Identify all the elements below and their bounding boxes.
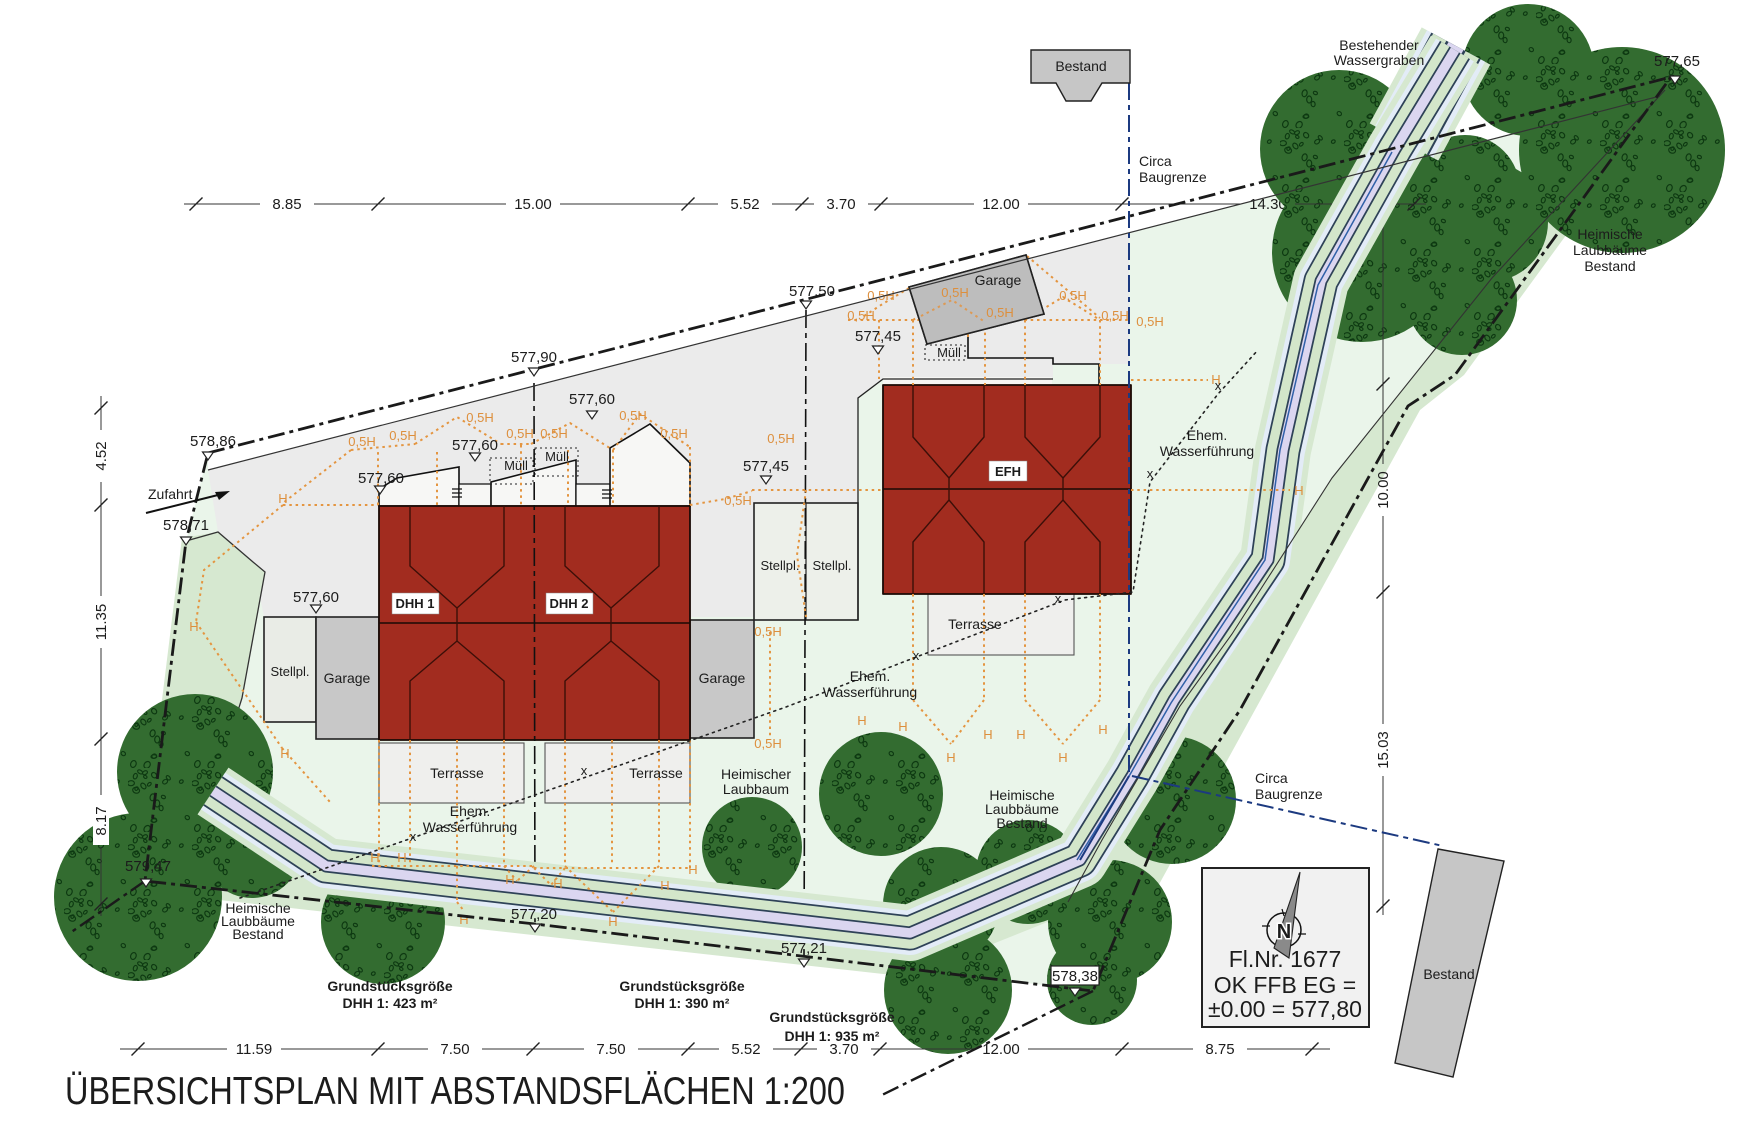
svg-text:H: H (608, 914, 617, 929)
svg-text:0,5H: 0,5H (1136, 314, 1163, 329)
svg-text:Müll: Müll (545, 449, 569, 464)
svg-text:0,5H: 0,5H (619, 408, 646, 423)
svg-text:8.17: 8.17 (93, 806, 110, 835)
svg-text:EFH: EFH (995, 464, 1021, 479)
svg-text:577,60: 577,60 (452, 437, 498, 454)
svg-text:±0.00 = 577,80: ±0.00 = 577,80 (1208, 996, 1362, 1022)
svg-text:Garage: Garage (699, 670, 746, 686)
svg-text:0,5H: 0,5H (724, 493, 751, 508)
svg-text:Zufahrt: Zufahrt (148, 486, 192, 502)
svg-text:H: H (397, 850, 406, 865)
svg-text:578,86: 578,86 (190, 433, 236, 450)
svg-text:Grundstücksgröße: Grundstücksgröße (327, 978, 452, 994)
svg-text:Garage: Garage (975, 272, 1022, 288)
svg-text:Müll: Müll (504, 458, 528, 473)
svg-text:Baugrenze: Baugrenze (1139, 169, 1207, 185)
svg-text:577,60: 577,60 (569, 391, 615, 408)
svg-text:H: H (459, 912, 468, 927)
svg-text:577,65: 577,65 (1654, 53, 1700, 70)
svg-text:7.50: 7.50 (596, 1041, 625, 1058)
svg-text:11.59: 11.59 (236, 1041, 272, 1058)
svg-text:Bestand: Bestand (996, 815, 1047, 831)
svg-text:DHH 2: DHH 2 (549, 596, 588, 611)
svg-text:x: x (1055, 591, 1062, 606)
svg-text:H: H (278, 491, 287, 506)
svg-text:H: H (1058, 750, 1067, 765)
svg-text:0,5H: 0,5H (540, 426, 567, 441)
svg-text:H: H (898, 719, 907, 734)
svg-text:OK FFB EG =: OK FFB EG = (1214, 972, 1357, 998)
svg-text:Garage: Garage (324, 670, 371, 686)
svg-text:11.35: 11.35 (93, 604, 110, 640)
svg-text:10.00: 10.00 (1375, 471, 1392, 509)
svg-text:H: H (553, 876, 562, 891)
svg-text:DHH 1: 390 m²: DHH 1: 390 m² (635, 995, 730, 1011)
svg-text:H: H (370, 850, 379, 865)
svg-text:x: x (581, 763, 588, 778)
svg-text:Bestand: Bestand (1055, 58, 1106, 74)
svg-text:Terrasse: Terrasse (629, 765, 683, 781)
svg-text:577,45: 577,45 (855, 328, 901, 345)
svg-text:ÜBERSICHTSPLAN MIT ABSTANDSFLÄ: ÜBERSICHTSPLAN MIT ABSTANDSFLÄCHEN 1:200 (65, 1070, 845, 1113)
svg-text:Ehem.: Ehem. (1187, 427, 1227, 443)
svg-text:577,45: 577,45 (743, 458, 789, 475)
svg-text:0,5H: 0,5H (1101, 308, 1128, 323)
svg-text:Wasserführung: Wasserführung (1160, 443, 1254, 459)
svg-text:H: H (505, 872, 514, 887)
svg-text:Stellpl.: Stellpl. (760, 558, 799, 573)
svg-text:Müll: Müll (937, 345, 961, 360)
svg-text:Bestand: Bestand (232, 926, 283, 942)
svg-text:578,38: 578,38 (1052, 968, 1098, 985)
svg-text:Ehem.: Ehem. (450, 803, 490, 819)
svg-text:Circa: Circa (1255, 770, 1288, 786)
svg-text:x: x (913, 648, 920, 663)
svg-text:577,60: 577,60 (358, 470, 404, 487)
svg-text:4.52: 4.52 (93, 441, 110, 470)
svg-text:Ehem.: Ehem. (850, 668, 890, 684)
svg-text:577,60: 577,60 (293, 589, 339, 606)
svg-text:H: H (1294, 483, 1303, 498)
svg-text:Wasserführung: Wasserführung (423, 819, 517, 835)
svg-text:0,5H: 0,5H (506, 426, 533, 441)
svg-text:H: H (1016, 727, 1025, 742)
svg-text:8.75: 8.75 (1205, 1041, 1234, 1058)
svg-text:Terrasse: Terrasse (430, 765, 484, 781)
svg-text:x: x (1215, 378, 1222, 393)
svg-text:8.85: 8.85 (272, 196, 301, 213)
svg-text:H: H (946, 750, 955, 765)
svg-text:Baugrenze: Baugrenze (1255, 786, 1323, 802)
svg-text:DHH 1: 935 m²: DHH 1: 935 m² (785, 1028, 880, 1044)
svg-text:0,5H: 0,5H (754, 736, 781, 751)
svg-text:Circa: Circa (1139, 153, 1172, 169)
svg-text:Heimische: Heimische (1577, 226, 1643, 242)
svg-text:Wasserführung: Wasserführung (823, 684, 917, 700)
svg-text:0,5H: 0,5H (986, 305, 1013, 320)
svg-text:Wassergraben: Wassergraben (1334, 52, 1425, 68)
svg-text:5.52: 5.52 (731, 1041, 760, 1058)
svg-text:Laubbaum: Laubbaum (723, 781, 789, 797)
svg-text:Fl.Nr. 1677: Fl.Nr. 1677 (1229, 946, 1342, 972)
svg-text:0,5H: 0,5H (941, 285, 968, 300)
svg-text:5.52: 5.52 (730, 196, 759, 213)
svg-text:Grundstücksgröße: Grundstücksgröße (769, 1009, 894, 1025)
svg-text:579,47: 579,47 (125, 858, 171, 875)
svg-text:0,5H: 0,5H (847, 308, 874, 323)
svg-text:H: H (983, 727, 992, 742)
svg-text:Bestand: Bestand (1423, 966, 1474, 982)
svg-text:H: H (660, 878, 669, 893)
svg-text:x: x (1147, 466, 1154, 481)
svg-text:Laubbäume: Laubbäume (1573, 242, 1647, 258)
svg-text:Terrasse: Terrasse (948, 616, 1002, 632)
svg-text:Heimischer: Heimischer (721, 766, 791, 782)
svg-text:0,5H: 0,5H (1059, 288, 1086, 303)
svg-text:0,5H: 0,5H (348, 434, 375, 449)
svg-text:0,5H: 0,5H (767, 431, 794, 446)
svg-text:Bestehender: Bestehender (1339, 37, 1419, 53)
svg-text:578,71: 578,71 (163, 517, 209, 534)
svg-text:H: H (189, 619, 198, 634)
svg-text:H: H (280, 746, 289, 761)
svg-text:Stellpl.: Stellpl. (270, 664, 309, 679)
svg-text:H: H (857, 713, 866, 728)
svg-text:577,90: 577,90 (511, 349, 557, 366)
svg-text:0,5H: 0,5H (867, 288, 894, 303)
svg-text:H: H (688, 862, 697, 877)
svg-text:DHH 1: 423 m²: DHH 1: 423 m² (343, 995, 438, 1011)
svg-text:Grundstücksgröße: Grundstücksgröße (619, 978, 744, 994)
svg-text:DHH 1: DHH 1 (395, 596, 434, 611)
svg-text:0,5H: 0,5H (389, 428, 416, 443)
svg-text:12.00: 12.00 (982, 196, 1020, 213)
svg-text:7.50: 7.50 (440, 1041, 469, 1058)
svg-text:H: H (1098, 722, 1107, 737)
svg-text:15.03: 15.03 (1375, 731, 1392, 769)
svg-text:Bestand: Bestand (1584, 258, 1635, 274)
svg-text:15.00: 15.00 (514, 196, 552, 213)
svg-text:0,5H: 0,5H (754, 624, 781, 639)
svg-text:577,50: 577,50 (789, 283, 835, 300)
svg-text:577,21: 577,21 (781, 940, 827, 957)
svg-text:x: x (410, 829, 417, 844)
svg-text:0,5H: 0,5H (466, 410, 493, 425)
svg-text:N: N (1277, 921, 1291, 943)
svg-text:0,5H: 0,5H (660, 426, 687, 441)
svg-text:3.70: 3.70 (826, 196, 855, 213)
svg-text:Stellpl.: Stellpl. (812, 558, 851, 573)
svg-text:577,20: 577,20 (511, 906, 557, 923)
